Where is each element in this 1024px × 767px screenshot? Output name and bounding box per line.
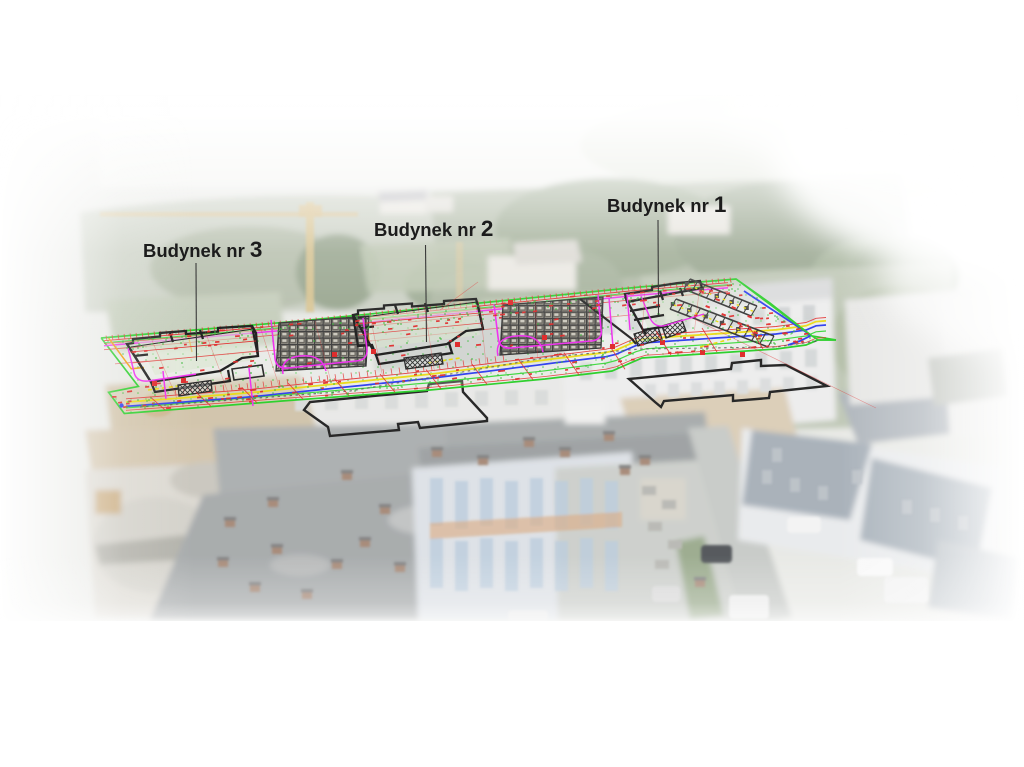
svg-text:Budynek nr 1: Budynek nr 1 bbox=[607, 192, 726, 217]
svg-text:Budynek nr 3: Budynek nr 3 bbox=[143, 237, 262, 262]
svg-text:Budynek nr 2: Budynek nr 2 bbox=[374, 216, 493, 241]
